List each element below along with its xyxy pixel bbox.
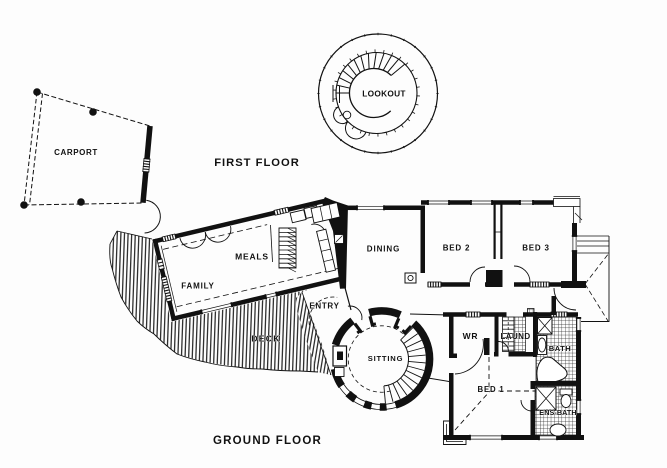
svg-text:GROUND FLOOR: GROUND FLOOR: [213, 435, 322, 447]
svg-text:WR: WR: [463, 331, 479, 341]
svg-text:DINING: DINING: [367, 245, 400, 254]
svg-text:DECK: DECK: [251, 334, 280, 344]
svg-text:BATH: BATH: [549, 344, 572, 353]
svg-text:LOOKOUT: LOOKOUT: [362, 89, 406, 99]
svg-text:FIRST FLOOR: FIRST FLOOR: [214, 157, 300, 169]
svg-text:ENTRY: ENTRY: [309, 302, 339, 311]
svg-text:CARPORT: CARPORT: [54, 148, 98, 157]
svg-text:ENS-BATH: ENS-BATH: [539, 408, 576, 417]
svg-text:BED 3: BED 3: [522, 244, 550, 253]
svg-text:LAUND: LAUND: [501, 332, 531, 341]
svg-text:BED 2: BED 2: [443, 244, 471, 253]
svg-text:BED 1: BED 1: [478, 385, 505, 394]
svg-text:MEALS: MEALS: [235, 252, 269, 262]
svg-text:SITTING: SITTING: [368, 354, 404, 363]
svg-text:FAMILY: FAMILY: [181, 282, 214, 291]
